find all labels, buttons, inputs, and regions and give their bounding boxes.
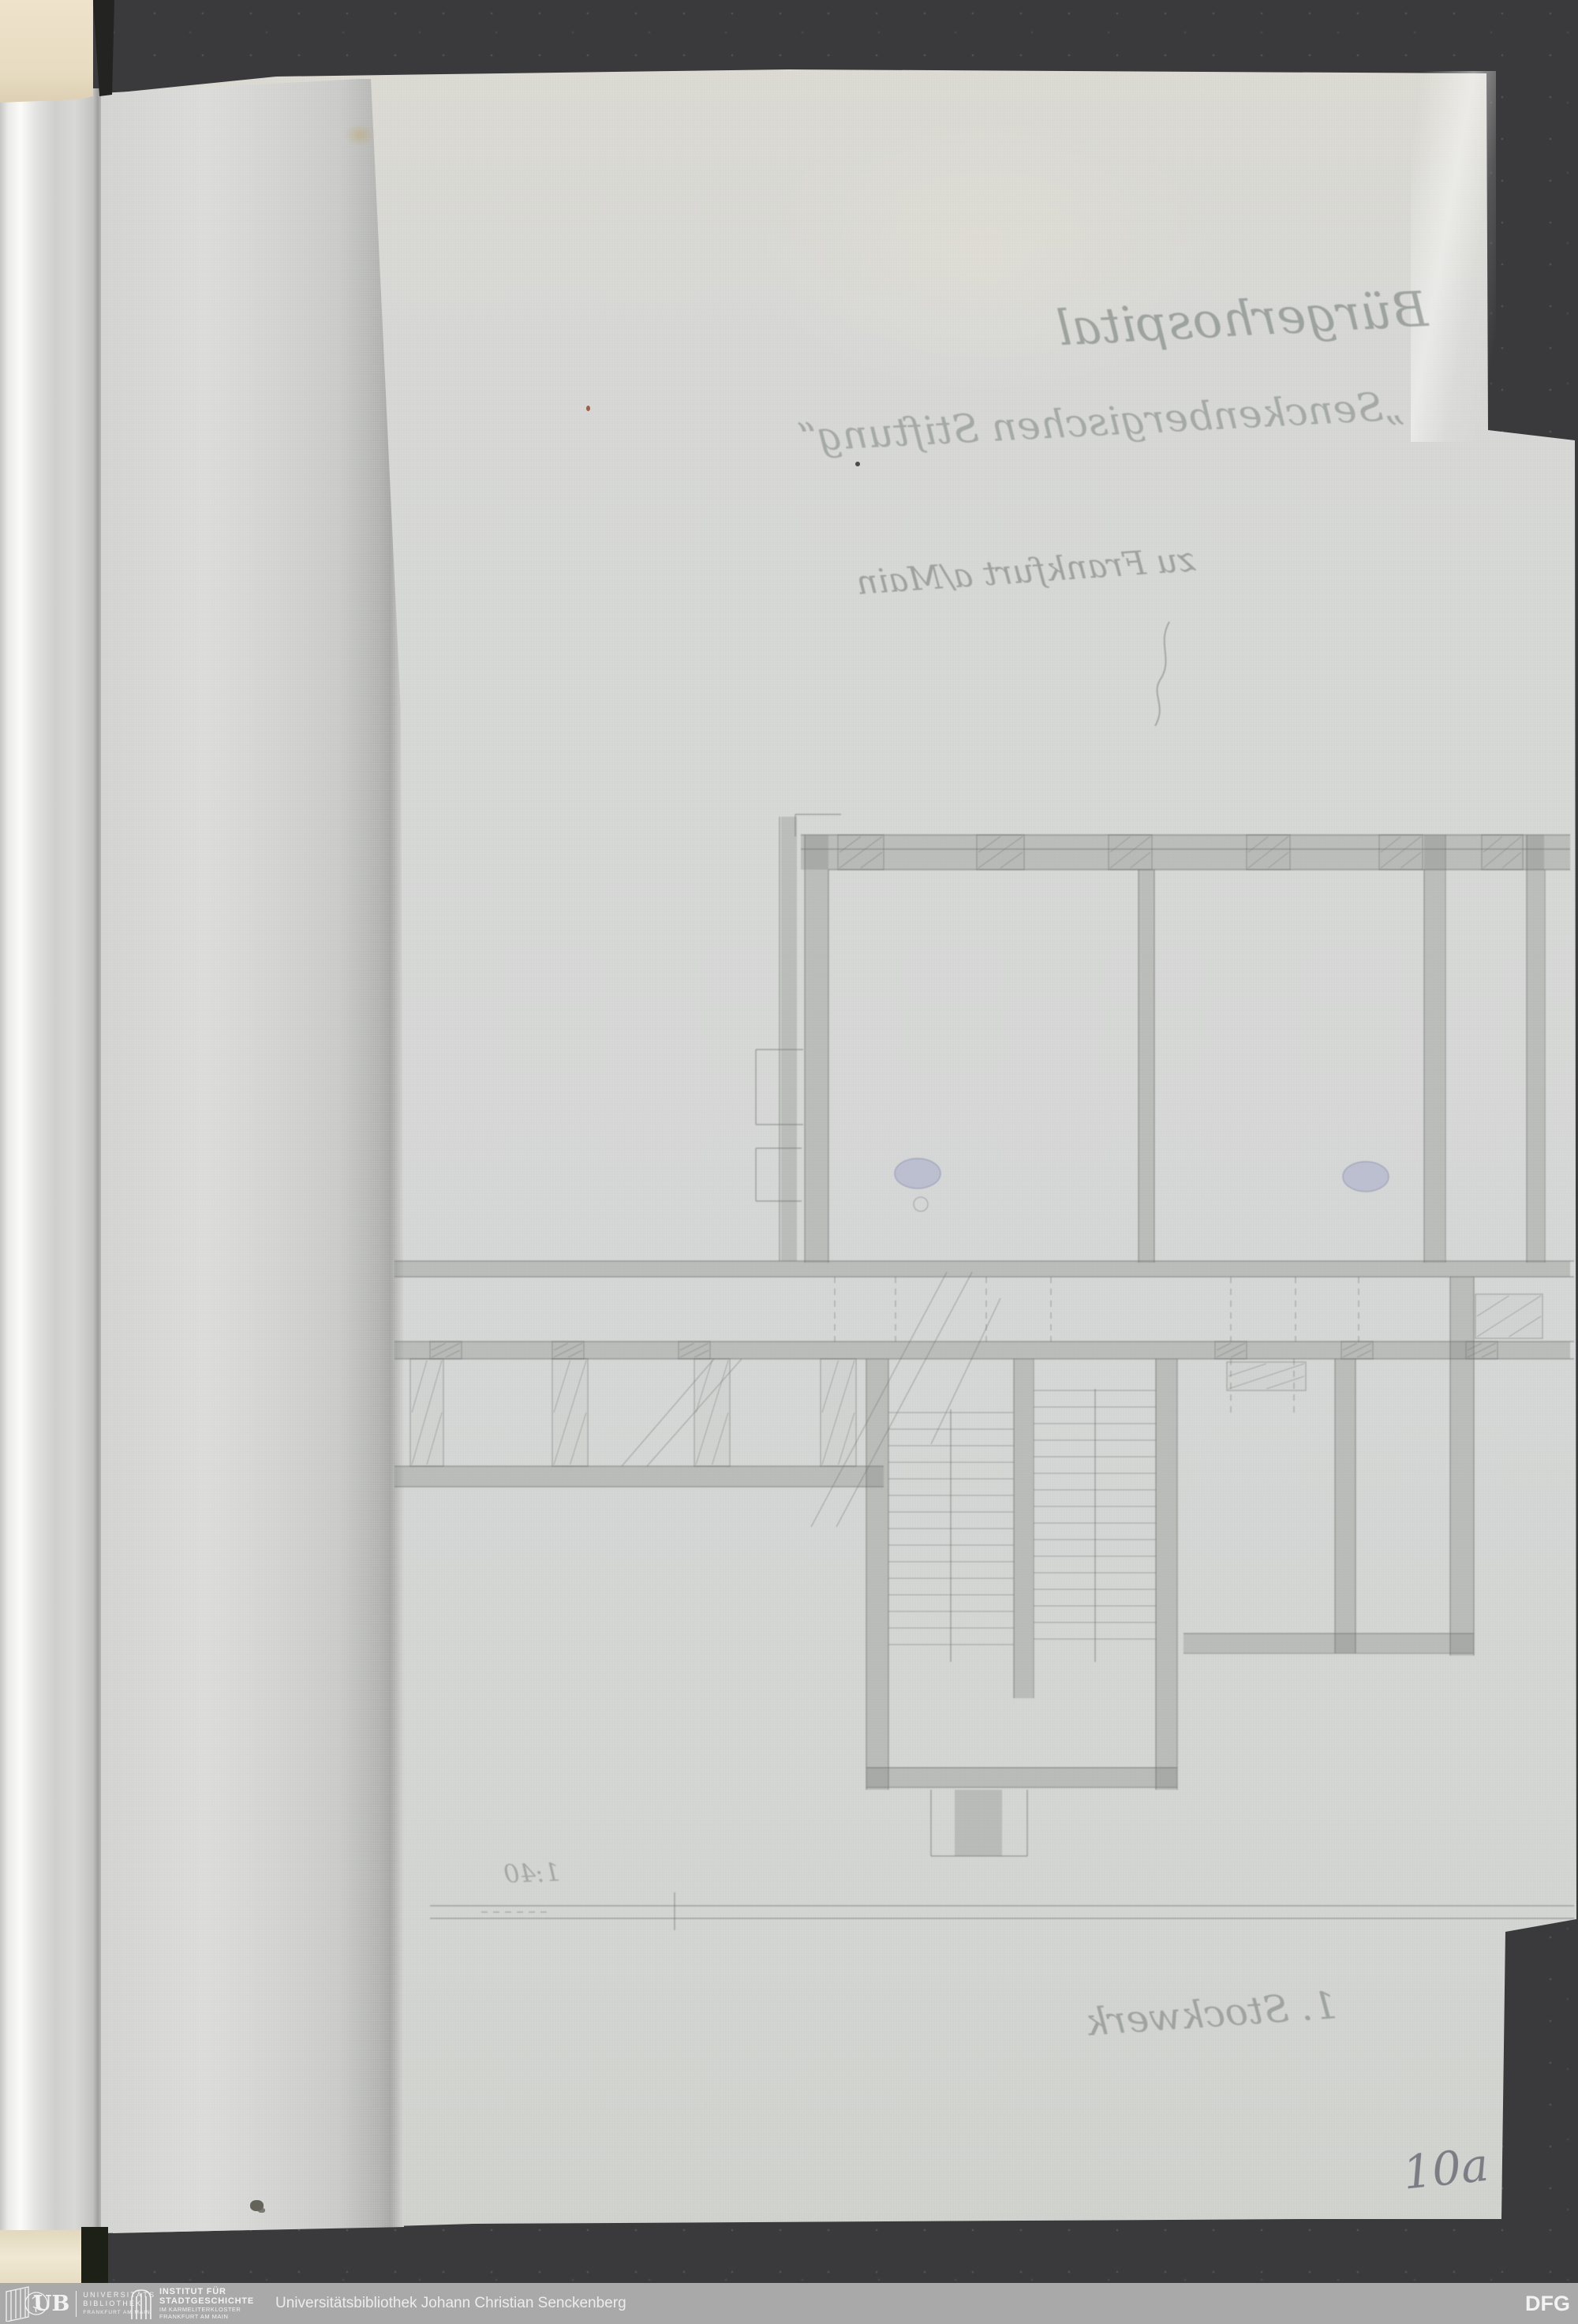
library-name: Universitätsbibliothek Johann Christian … <box>275 2283 626 2324</box>
ub-abbrev: UB <box>33 2292 69 2316</box>
ifs-line-2: STADTGESCHICHTE <box>159 2296 254 2306</box>
floorplan-drawing <box>0 0 1578 2324</box>
dfg-logo: DFG <box>1525 2283 1570 2324</box>
handwriting-scale-note: 1:40 <box>449 1858 560 1892</box>
dark-spot <box>250 2200 264 2211</box>
scanned-archive-page: Bürgerhospital „Senckenbergischen Stiftu… <box>0 0 1578 2324</box>
digitization-footer: UB UNIVERSITÄTS BIBLIOTHEK FRANKFURT AM … <box>0 2283 1578 2324</box>
ink-speck <box>586 406 590 411</box>
dark-speck <box>855 462 860 466</box>
ifs-logo-text: INSTITUT FÜR STADTGESCHICHTE IM KARMELIT… <box>159 2287 254 2320</box>
ifs-line-1: INSTITUT FÜR <box>159 2287 254 2296</box>
ifs-logo: INSTITUT FÜR STADTGESCHICHTE IM KARMELIT… <box>128 2283 254 2324</box>
ifs-line-4: FRANKFURT AM MAIN <box>159 2313 254 2320</box>
ifs-line-3: IM KARMELITERKLOSTER <box>159 2306 254 2313</box>
paper-stain <box>344 123 376 147</box>
ifs-arch-icon <box>128 2287 155 2320</box>
